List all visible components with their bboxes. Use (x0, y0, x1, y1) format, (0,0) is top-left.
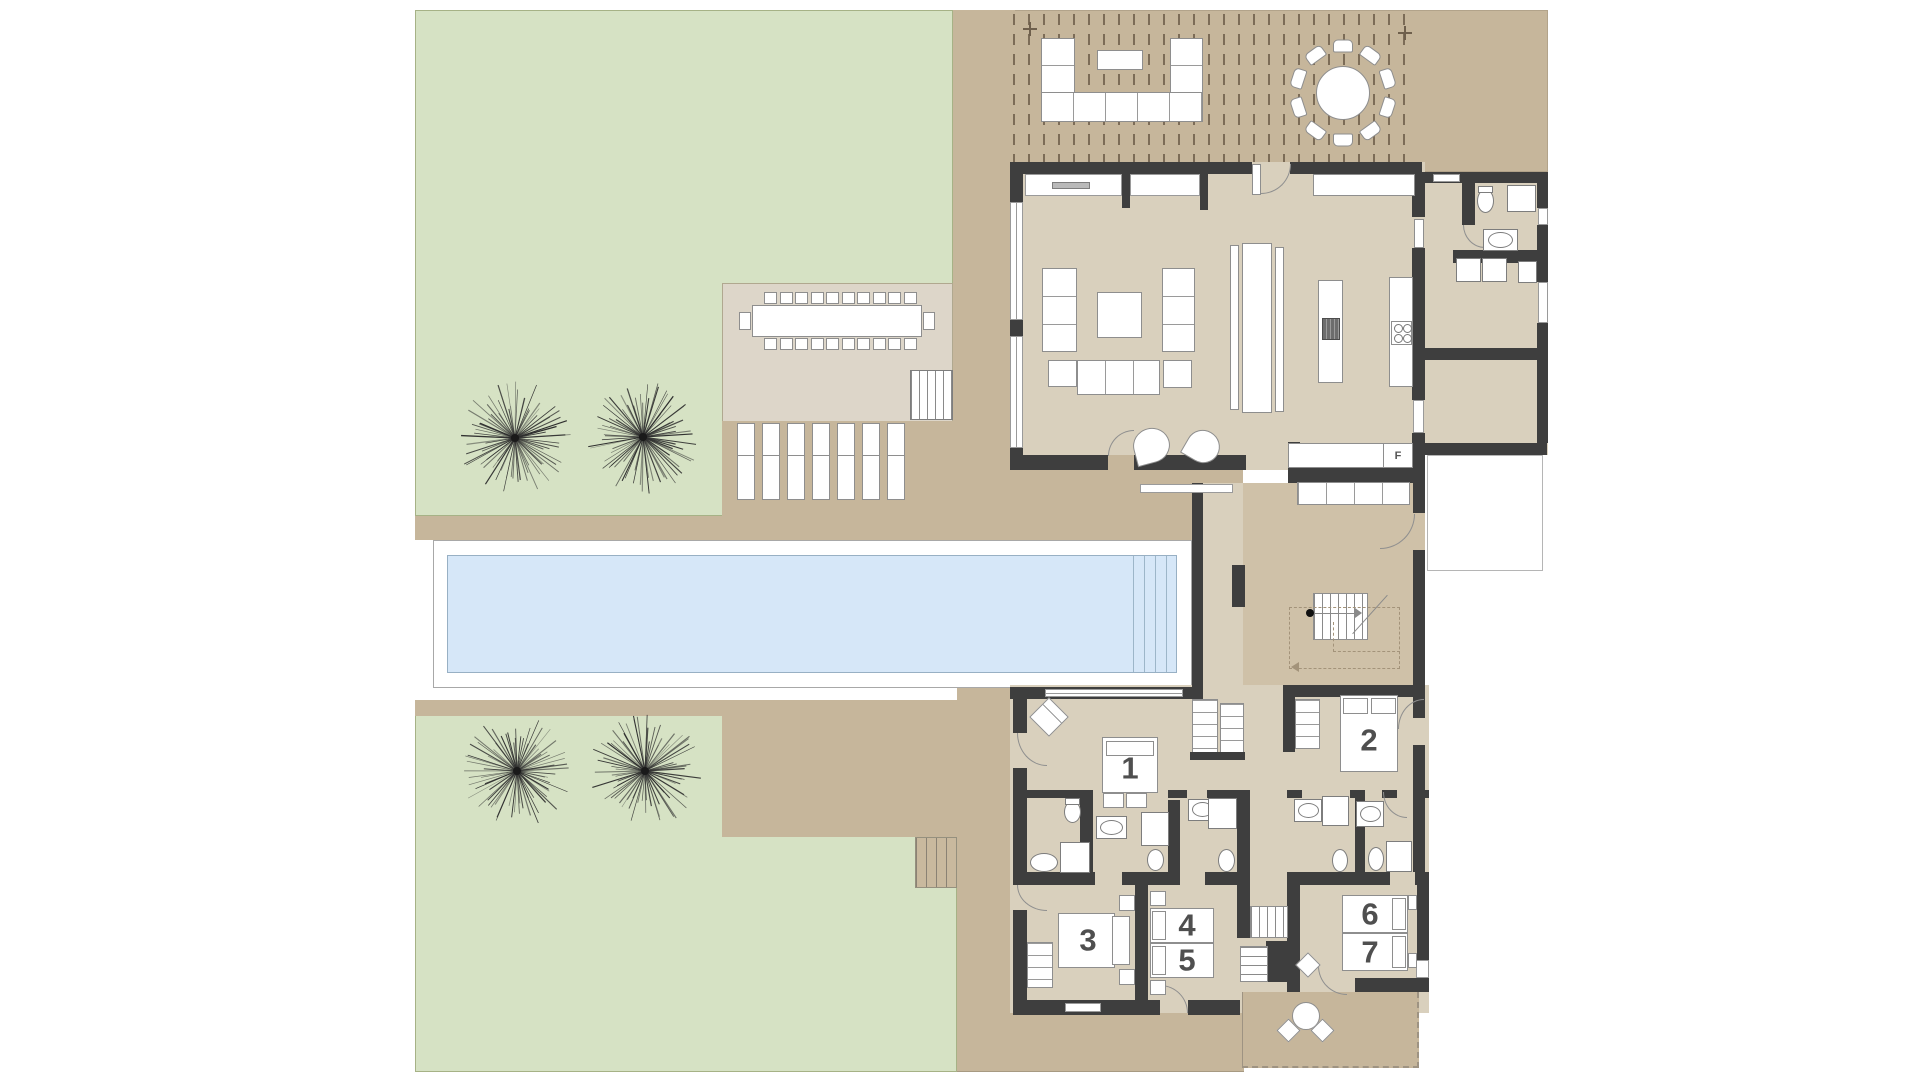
survey-cross-icon (1023, 22, 1037, 36)
outdoor-table-chairs-top (764, 292, 917, 304)
wall (1135, 885, 1148, 1002)
side-path-west-of-house (953, 10, 1015, 537)
burner (1394, 324, 1403, 333)
pillow (1392, 898, 1406, 930)
wall (1413, 483, 1425, 513)
outdoor-chair (795, 292, 808, 304)
wall (1122, 872, 1180, 885)
room-label-1: 1 (1121, 753, 1138, 784)
garden-steps (915, 837, 957, 888)
sink-icon (1030, 853, 1058, 872)
dining-bench (1230, 245, 1239, 410)
wall (1010, 320, 1023, 336)
wall (1190, 752, 1245, 760)
window-pool-facing (1045, 689, 1183, 697)
wall (1288, 468, 1425, 483)
hall-cabinets (1297, 482, 1410, 505)
outdoor-chair (811, 292, 824, 304)
sofa (1077, 360, 1160, 395)
wall (1013, 768, 1027, 885)
hall-shelf (1220, 703, 1244, 759)
path-above-pool (415, 516, 1015, 540)
fireplace-label: F (1395, 450, 1402, 462)
wall (1462, 183, 1475, 225)
wall (1413, 550, 1425, 687)
sun-lounger (887, 423, 905, 500)
stair-path-arrow (1291, 662, 1299, 672)
wall (1168, 790, 1187, 798)
toilet-icon (1218, 849, 1235, 872)
sun-lounger (762, 423, 780, 500)
round-dining-table (1316, 66, 1370, 120)
shower-icon (1322, 796, 1349, 826)
window-sill-bench (1052, 182, 1090, 189)
wall (1200, 162, 1208, 210)
sun-loungers (737, 423, 905, 500)
dining-table (1242, 243, 1272, 413)
floor-plan-canvas: F 1 2 3 4 5 6 7 (0, 0, 1920, 1080)
shower-icon (1208, 798, 1237, 829)
wall (1013, 910, 1027, 1002)
window (1433, 174, 1460, 182)
room-label-5: 5 (1178, 945, 1195, 976)
outdoor-table-chair-left (739, 312, 751, 330)
outdoor-chair (904, 292, 917, 304)
shower-icon (1386, 841, 1412, 872)
outdoor-chair (888, 338, 901, 350)
wall (1207, 790, 1237, 798)
sofa-corner (1048, 360, 1077, 387)
wall (1290, 162, 1422, 174)
room-label-4: 4 (1178, 910, 1195, 941)
wall (1010, 162, 1252, 174)
path-south-of-house (957, 1013, 1244, 1072)
burner (1394, 334, 1403, 343)
burner (1403, 334, 1412, 343)
pillow (1152, 911, 1166, 940)
window (1538, 282, 1548, 323)
nightstand (1150, 980, 1166, 995)
pergola-sofa-seat (1041, 92, 1203, 122)
outdoor-chair (826, 338, 839, 350)
wall (1537, 183, 1548, 208)
outdoor-chair (764, 292, 777, 304)
window (1010, 202, 1023, 320)
armchair (1163, 360, 1192, 388)
bed-foot-bench (1103, 793, 1124, 808)
outdoor-chair (857, 338, 870, 350)
window (1010, 336, 1023, 448)
wall (1355, 978, 1429, 992)
bedroom3-wardrobe (1027, 942, 1053, 988)
outdoor-long-table (752, 305, 922, 337)
pillow (1112, 916, 1130, 965)
wall (1412, 248, 1425, 400)
kitchen-sink (1322, 318, 1340, 340)
wall (1013, 872, 1095, 885)
wall (1287, 790, 1302, 798)
entry-porch (1427, 455, 1543, 571)
sink-icon (1298, 803, 1319, 818)
tan-notch-below-pool (722, 700, 957, 837)
outdoor-chair (873, 338, 886, 350)
utility-sink-icon (1518, 261, 1537, 283)
window (1416, 960, 1429, 978)
sink-icon (1488, 232, 1513, 248)
coffee-table (1097, 292, 1142, 338)
wall (1537, 225, 1548, 282)
wall (1168, 800, 1180, 872)
shower-icon (1060, 842, 1090, 873)
wall (1237, 903, 1250, 938)
room-label-6: 6 (1361, 899, 1378, 930)
toilet-tank (1065, 798, 1080, 805)
door-leaf (1252, 164, 1261, 195)
pillow (1152, 946, 1166, 975)
pillow (1371, 698, 1396, 714)
sun-lounger (862, 423, 880, 500)
wall (1010, 455, 1108, 470)
dryer-icon (1482, 258, 1507, 282)
wall (1192, 483, 1203, 699)
sofa (1042, 268, 1077, 352)
tree-icon (457, 380, 573, 496)
pool-steps (1133, 556, 1176, 672)
wall (1266, 941, 1290, 982)
wall (1413, 790, 1425, 872)
round-table-chair (1333, 40, 1353, 53)
wall (1420, 443, 1547, 455)
toilet-icon (1332, 849, 1348, 872)
outdoor-chair (842, 338, 855, 350)
outdoor-chair (904, 338, 917, 350)
outdoor-chair (888, 292, 901, 304)
sun-lounger (812, 423, 830, 500)
cooktop (1391, 321, 1412, 345)
outdoor-chair (764, 338, 777, 350)
bed-foot-bench (1126, 793, 1147, 808)
burner (1403, 324, 1412, 333)
toilet-icon (1368, 847, 1384, 871)
pad-steps (910, 370, 953, 420)
toilet-tank (1478, 186, 1493, 193)
outdoor-chair (857, 292, 870, 304)
outdoor-table-chairs-bottom (764, 338, 917, 350)
bedroom2-closet (1295, 699, 1320, 749)
shower-icon (1141, 812, 1169, 846)
pillow (1343, 698, 1368, 714)
wall (1013, 687, 1027, 733)
tree-icon (588, 714, 702, 828)
washer-icon (1456, 258, 1481, 282)
pergola-coffee-table (1097, 50, 1143, 70)
sink-icon (1100, 820, 1123, 835)
wall (1122, 162, 1130, 208)
sofa (1162, 268, 1195, 352)
fireplace-cell: F (1383, 443, 1413, 468)
survey-cross-icon (1398, 26, 1412, 40)
swimming-pool (447, 555, 1177, 673)
wall (1205, 872, 1237, 885)
sun-lounger (837, 423, 855, 500)
nightstand (1150, 891, 1166, 906)
outdoor-chair (795, 338, 808, 350)
sun-lounger (787, 423, 805, 500)
window-recess (1130, 174, 1200, 196)
room-label-2: 2 (1360, 725, 1377, 756)
door-leaf (1414, 219, 1424, 248)
room-label-7: 7 (1361, 937, 1378, 968)
right-wing-floor (1412, 172, 1548, 455)
outdoor-chair (811, 338, 824, 350)
outdoor-chair (780, 292, 793, 304)
window (1538, 208, 1548, 225)
tree-icon (585, 379, 701, 495)
nightstand (1408, 953, 1417, 968)
wall (1425, 348, 1547, 360)
dining-bench (1275, 247, 1284, 412)
sink-icon (1360, 806, 1381, 822)
interior-window (1413, 400, 1424, 433)
outdoor-chair (780, 338, 793, 350)
outdoor-chair (842, 292, 855, 304)
tree-icon (460, 714, 574, 828)
wall (1415, 872, 1429, 885)
wall (1232, 565, 1245, 607)
pillow (1392, 936, 1406, 968)
wall (1010, 162, 1023, 202)
sun-lounger (737, 423, 755, 500)
nightstand (1119, 895, 1135, 911)
nightstand (1408, 895, 1417, 910)
round-table-chair (1333, 134, 1353, 147)
shower-icon (1507, 185, 1536, 212)
outdoor-table-chair-right (923, 312, 935, 330)
outdoor-chair (873, 292, 886, 304)
wall (1413, 745, 1425, 790)
kitchen-counter-top (1313, 174, 1415, 196)
wall (1537, 323, 1548, 443)
door-threshold (1140, 484, 1233, 493)
hall-shelf (1192, 699, 1218, 753)
wall (1287, 872, 1390, 885)
stair-dashed-path-inner (1333, 622, 1400, 652)
wall (1188, 1000, 1240, 1015)
outdoor-chair (826, 292, 839, 304)
hall-steps (1250, 906, 1288, 938)
wall (1283, 687, 1295, 752)
nightstand (1119, 969, 1135, 985)
toilet-icon (1147, 849, 1164, 871)
window (1065, 1003, 1101, 1012)
room-label-3: 3 (1079, 925, 1096, 956)
hall-steps-down (1240, 946, 1268, 982)
